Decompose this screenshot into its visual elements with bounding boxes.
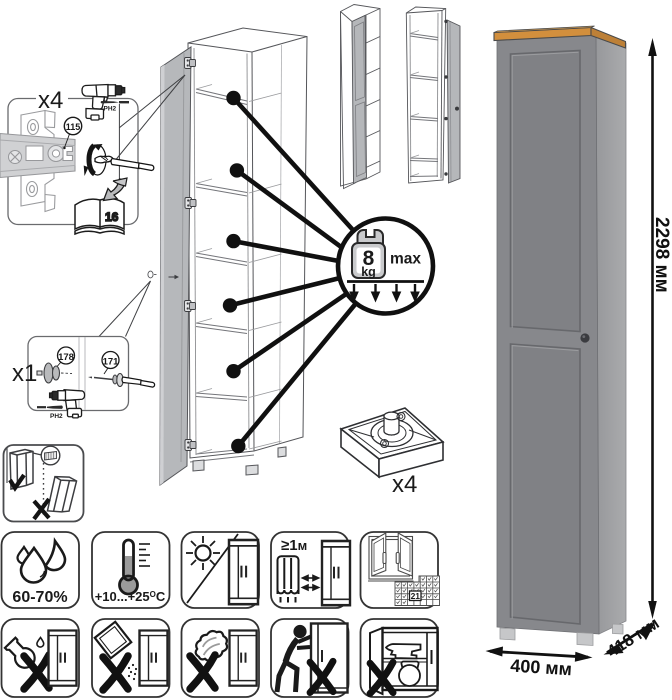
svg-text:PH2: PH2 — [104, 106, 117, 113]
svg-text:400 мм: 400 мм — [510, 656, 573, 680]
svg-text:+10...+25OC: +10...+25OC — [95, 589, 166, 604]
svg-text:115: 115 — [66, 122, 81, 132]
svg-text:x4: x4 — [38, 87, 63, 114]
svg-text:21: 21 — [411, 591, 421, 601]
svg-text:kg: kg — [361, 265, 376, 279]
svg-text:max: max — [390, 251, 421, 268]
svg-text:x1: x1 — [12, 360, 37, 387]
svg-text:≥1м: ≥1м — [281, 537, 307, 554]
svg-text:60-70%: 60-70% — [12, 589, 67, 606]
svg-text:178: 178 — [58, 352, 74, 363]
svg-text:171: 171 — [103, 356, 120, 367]
svg-text:16: 16 — [105, 210, 119, 224]
svg-text:x4: x4 — [392, 471, 417, 498]
svg-text:2298 мм: 2298 мм — [651, 217, 672, 293]
svg-text:PH2: PH2 — [50, 413, 63, 420]
